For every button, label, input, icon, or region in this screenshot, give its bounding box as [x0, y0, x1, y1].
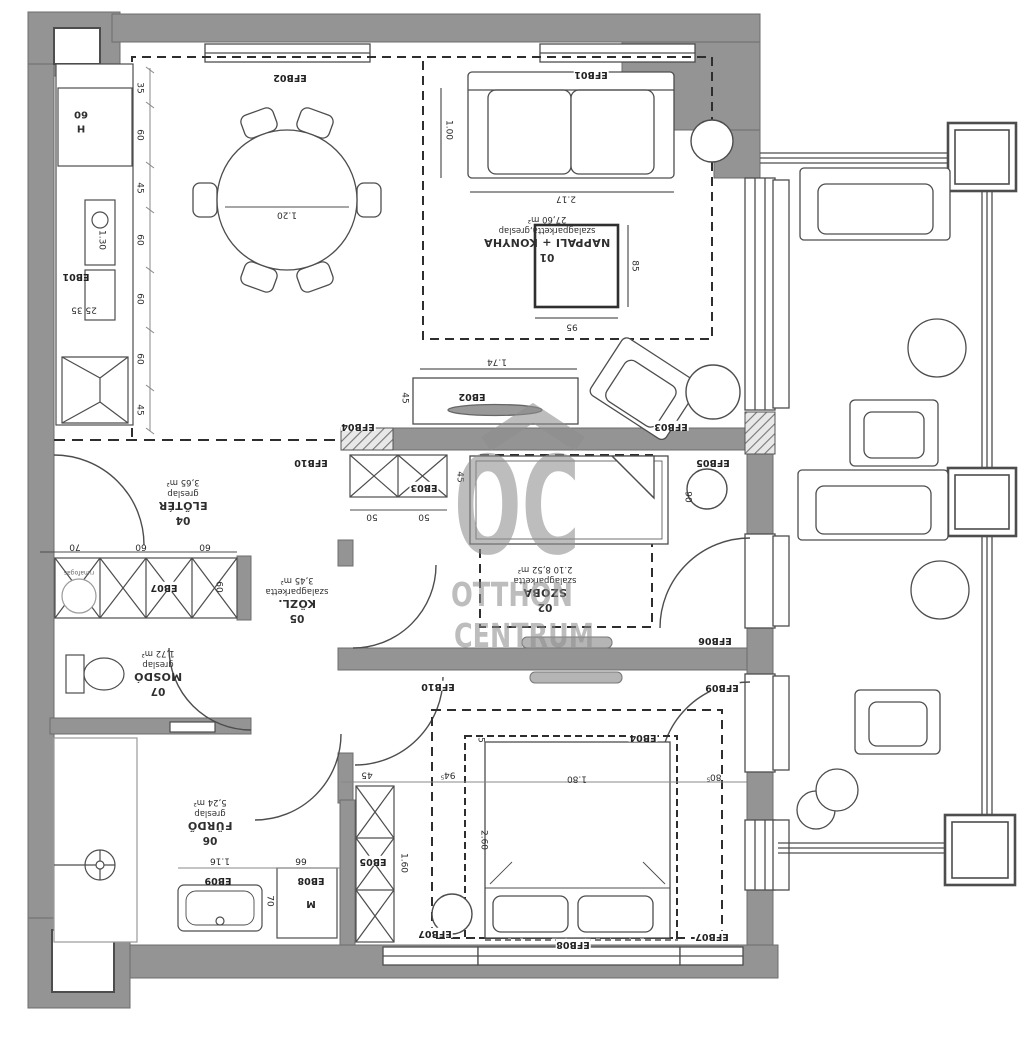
label-eb09: EB09	[204, 875, 233, 885]
room-label-szoba: 02 SZOBA szalagparketta 2.10 8,52 m²	[514, 563, 577, 613]
wall-left	[28, 64, 54, 940]
room-area: 2.10 8,52 m²	[514, 563, 577, 574]
dim-eloter-60b: 60	[199, 542, 210, 551]
room-area: 5,24 m²	[188, 796, 233, 807]
window-frame-4	[773, 820, 789, 890]
dim-k2: 60	[135, 129, 144, 140]
window-bedroom-balcony	[745, 820, 775, 890]
mosdo-radiator	[170, 722, 215, 732]
label-eb02: EB02	[458, 391, 487, 401]
wardrobe-eb07	[40, 552, 237, 618]
dim-eb03-depth: 45	[455, 471, 464, 482]
room-label-furdo: 06 FÜRDŐ greslap 5,24 m²	[188, 796, 233, 846]
room-area: 27,60 m²	[484, 213, 610, 224]
label-efb09: EFB09	[704, 682, 739, 692]
door-opening-efb06	[745, 534, 775, 628]
room-label-kozl: 05 KÖZL. szalagparketta 3,45 m²	[266, 574, 329, 624]
room-label-mosdo: 07 MOSDÓ greslap 1,72 m²	[134, 647, 182, 697]
dim-bed-94: 94⁵	[440, 770, 455, 779]
coat-rack-circle	[62, 579, 96, 613]
dim-k6: 60	[135, 353, 144, 364]
wall-mosdo-furdo	[50, 718, 251, 734]
plant-szoba	[687, 469, 727, 509]
room-floor: szalagparketta,greslap	[484, 224, 610, 235]
dim-sofa-offset: 1.00	[444, 120, 453, 140]
dim-eb05-len: 1.60	[399, 853, 408, 873]
bed-double	[341, 742, 747, 938]
dim-eb03-a: 50	[366, 512, 377, 521]
dim-bed-80: 80⁵	[706, 772, 721, 781]
door-arc-szoba-balcony	[660, 538, 750, 628]
dim-bath-66: 66	[295, 856, 306, 865]
label-efb01: EFB01	[573, 69, 608, 79]
room-name: SZOBA	[514, 585, 577, 599]
room-floor: greslap	[158, 487, 207, 498]
label-efb06: EFB06	[697, 635, 732, 645]
wall-right-2	[747, 628, 773, 674]
door-arc-szoba	[353, 565, 436, 648]
dim-eb02-depth: 45	[400, 392, 409, 403]
dim-k7: 45	[135, 404, 144, 415]
toilet-tank	[66, 655, 84, 693]
room-name: MOSDÓ	[134, 669, 182, 683]
window-frame-1	[773, 180, 789, 408]
wall-kozl-stub-bottom	[338, 753, 353, 803]
dim-eloter-60a: 60	[135, 542, 146, 551]
radiator-bedroom	[530, 672, 622, 683]
dim-washer-70: 70	[265, 895, 274, 906]
label-coatrack: ruhafogas	[64, 569, 94, 575]
dim-k4: 60	[135, 234, 144, 245]
fridge-label: H 60	[74, 108, 88, 135]
balcony-table-1	[908, 319, 966, 377]
pillow-right	[578, 896, 653, 932]
label-eb07: EB07	[150, 582, 179, 592]
wall-right-3	[747, 772, 773, 820]
floor-plan: 01 NAPPALI + KONYHA szalagparketta,gresl…	[0, 0, 1035, 1054]
label-eb01: EB01	[62, 271, 91, 281]
wall-kozl-stub-top	[338, 540, 353, 566]
tv	[448, 405, 542, 416]
dim-sofa: 2.17	[556, 194, 576, 203]
floor-plan-drawing	[0, 0, 1035, 1054]
room-label-nappali: 01 NAPPALI + KONYHA szalagparketta,gresl…	[484, 213, 610, 263]
dim-bed-45: 45	[361, 770, 372, 779]
dim-bed-180: 1.80	[567, 774, 587, 783]
dim-eb02-len: 1.74	[487, 357, 507, 366]
label-eb08: EB08	[297, 875, 326, 885]
sofa-living	[468, 72, 674, 178]
sideboard-eb02	[413, 378, 578, 424]
kitchen-dim-chain	[146, 67, 154, 434]
room-name: KÖZL.	[266, 596, 329, 610]
fridge-dim: 60	[74, 108, 88, 122]
dim-k3: 45	[135, 182, 144, 193]
shower-head-center	[96, 861, 104, 869]
label-washer-m: M	[305, 898, 316, 908]
room-floor: szalagparketta	[514, 574, 577, 585]
room-number: 07	[134, 683, 182, 697]
tap	[216, 917, 224, 925]
balcony-table-2	[911, 561, 969, 619]
door-arc-entrance	[54, 455, 144, 545]
room-name: FÜRDŐ	[188, 818, 233, 832]
room-area: 3,65 m²	[158, 476, 207, 487]
balcony-plant-2	[816, 769, 858, 811]
balcony	[760, 123, 1016, 885]
room-number: 02	[514, 599, 577, 613]
shower-tray	[54, 738, 137, 942]
dim-k5: 60	[135, 293, 144, 304]
wall-furdo-bedroom	[340, 800, 355, 945]
wall-right-4	[747, 890, 773, 945]
bed-szoba	[470, 456, 668, 544]
fridge	[58, 88, 132, 166]
room-name: NAPPALI + KONYHA	[484, 235, 610, 249]
dim-counter: 25 35	[71, 305, 97, 314]
label-eb04: EB04	[629, 732, 658, 742]
label-efb08: EFB08	[555, 939, 590, 949]
dim-bed-260: 2.60	[479, 830, 488, 850]
dim-bath-116: 1.16	[210, 856, 230, 865]
shaft-right	[745, 412, 775, 454]
dim-box-95: 95	[566, 322, 577, 331]
label-efb02: EFB02	[272, 72, 307, 82]
door-opening-efb09	[745, 674, 775, 772]
dim-k1: 35	[135, 82, 144, 93]
column-void-top-left	[54, 28, 100, 64]
room-number: 04	[158, 512, 207, 526]
room-label-eloter: 04 ELŐTÉR greslap 3,65 m²	[158, 476, 207, 526]
radiator-szoba	[522, 637, 612, 648]
room-area: 3,45 m²	[266, 574, 329, 585]
dim-box-85: 85	[630, 260, 639, 271]
room-number: 01	[484, 249, 610, 263]
room-floor: szalagparketta	[266, 585, 329, 596]
room-floor: greslap	[188, 807, 233, 818]
dim-eloter-70: 70	[69, 542, 80, 551]
window-frame-3	[773, 676, 789, 770]
fridge-code: H	[74, 121, 88, 135]
window-living-balcony	[745, 178, 775, 410]
dim-eb03-b: 50	[418, 512, 429, 521]
label-eb05: EB05	[359, 856, 388, 866]
door-arc-furdo	[255, 734, 341, 820]
sink	[62, 357, 128, 423]
wall-eloter-kozl	[237, 556, 251, 620]
dining-table	[217, 130, 357, 270]
label-efb10-top: EFB10	[293, 457, 328, 467]
dim-plant-szoba: 90	[683, 491, 692, 502]
room-number: 05	[266, 610, 329, 624]
label-efb07-right: EFB07	[694, 931, 729, 941]
door-arc-bedroom-balcony	[660, 682, 750, 772]
dining-set	[193, 106, 381, 294]
pillow-left	[493, 896, 568, 932]
room-area: 1,72 m²	[134, 647, 182, 658]
dim-eb07-depth: 60	[214, 581, 223, 592]
dim-bed-5: 5	[476, 737, 485, 743]
room-floor: greslap	[134, 658, 182, 669]
balcony-columns	[945, 123, 1016, 885]
room-number: 06	[188, 832, 233, 846]
label-efb04: EFB04	[340, 421, 375, 431]
toilet-bowl	[84, 658, 124, 690]
wall-right-1	[747, 454, 773, 534]
plant-living-bottom	[686, 365, 740, 419]
label-efb07-left: EFB07	[417, 928, 452, 938]
wall-top	[112, 14, 760, 42]
window-frame-2	[773, 536, 789, 626]
label-eb03: EB03	[410, 482, 439, 492]
dim-table: 1.20	[277, 210, 297, 219]
label-efb03: EFB03	[653, 421, 688, 431]
label-efb10-bottom: EFB10	[420, 681, 455, 691]
dim-hob: 1.30	[97, 230, 106, 250]
hob-ring	[92, 212, 108, 228]
balcony-furniture	[797, 168, 969, 829]
plant-living-top	[691, 120, 733, 162]
wall-szoba-bedroom	[338, 648, 747, 670]
room-name: ELŐTÉR	[158, 498, 207, 512]
label-efb05: EFB05	[695, 457, 730, 467]
